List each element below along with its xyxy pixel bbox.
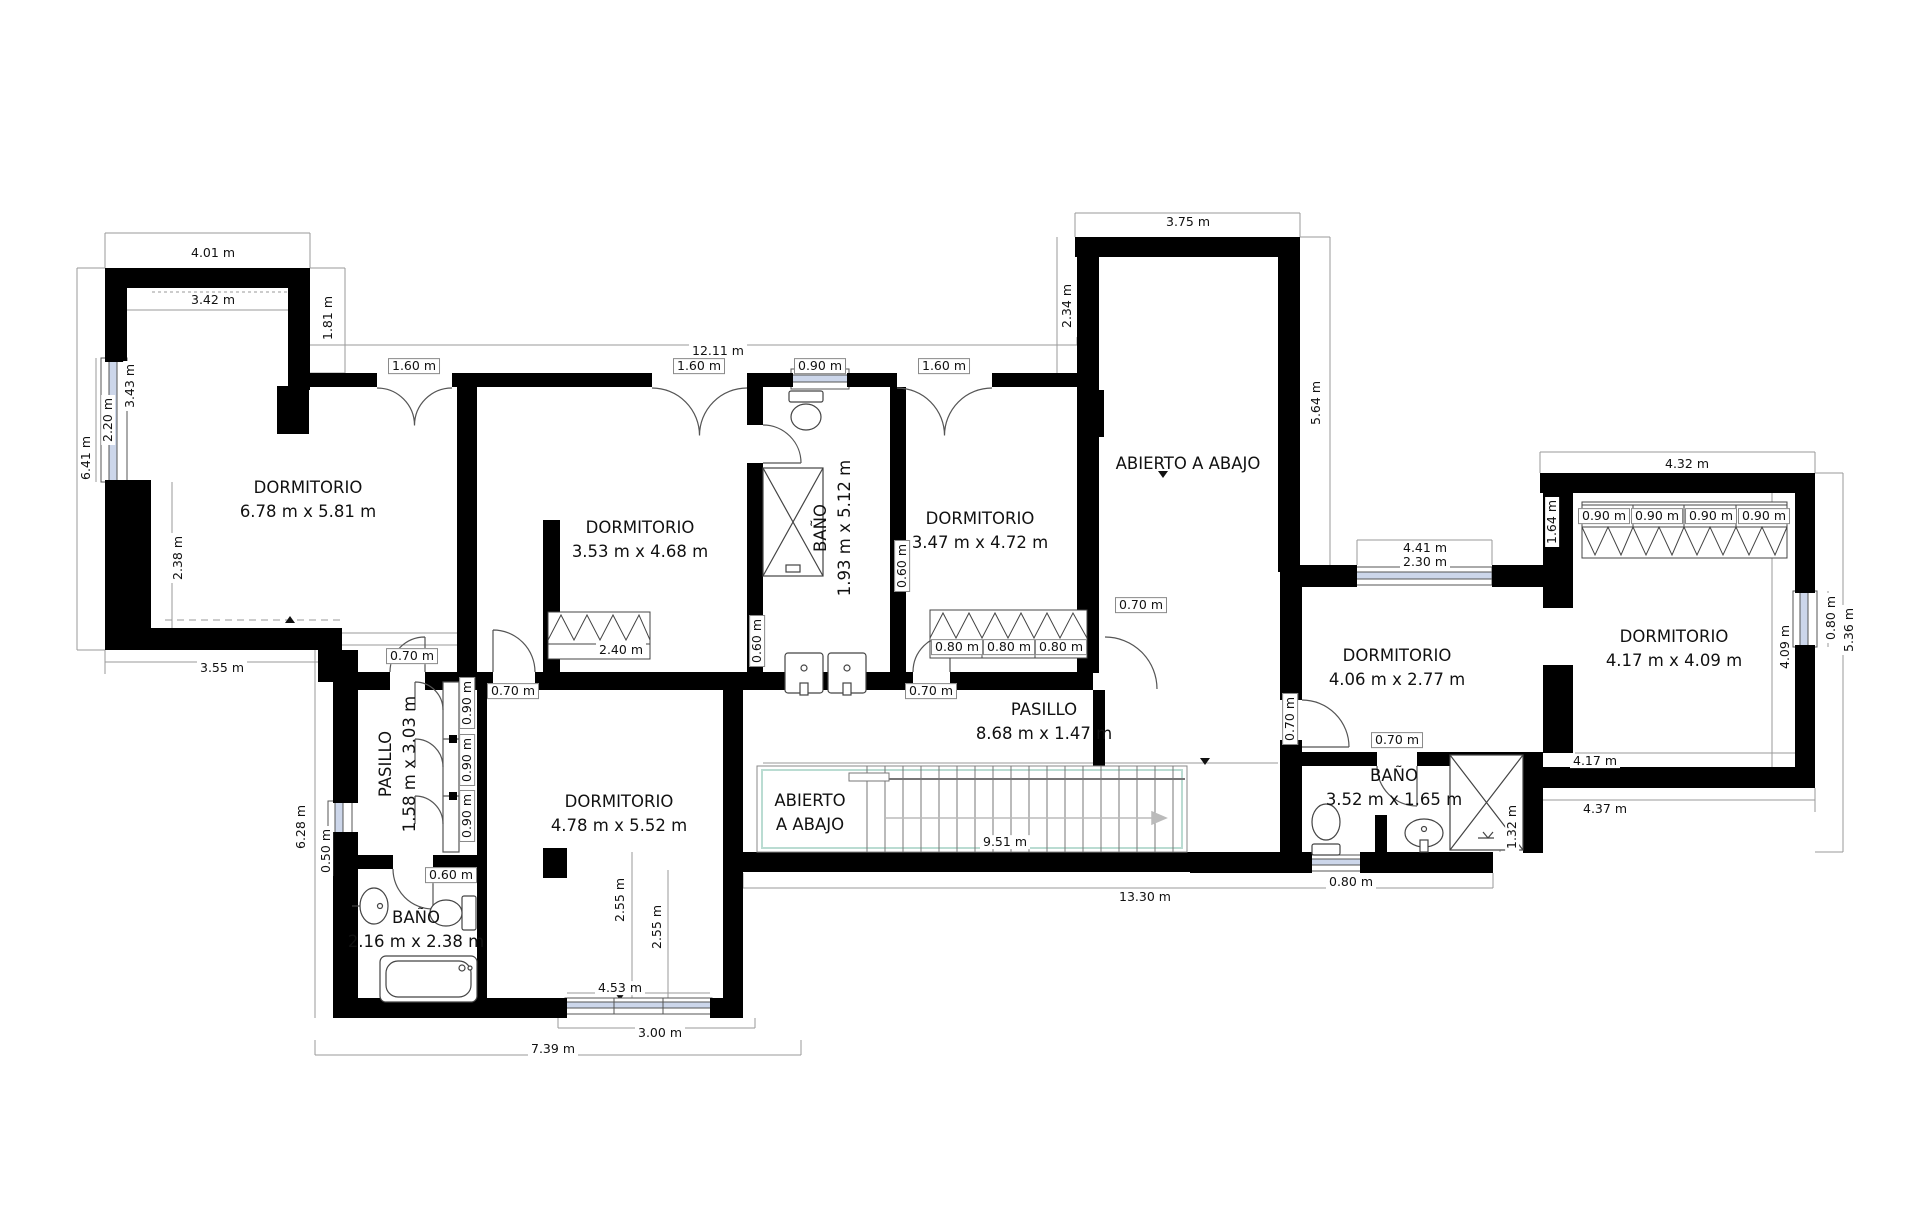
- bathtub-bano2: [380, 956, 477, 1002]
- dimension-label-21: 2.40 m: [596, 643, 646, 657]
- dimension-label-48: 0.60 m: [425, 867, 477, 883]
- room-label-pasillo-2: PASILLO 1.58 m x 3.03 m: [374, 696, 422, 832]
- room-label-dormitorio-3: DORMITORIO 3.47 m x 4.72 m: [912, 507, 1048, 555]
- dimension-label-16: 0.70 m: [386, 648, 438, 664]
- dimension-label-3: 12.11 m: [689, 344, 747, 358]
- dimension-label-27: 0.70 m: [1371, 732, 1423, 748]
- room-label-dormitorio-4: DORMITORIO 4.06 m x 2.77 m: [1329, 644, 1465, 692]
- dimension-label-10: 5.64 m: [1309, 378, 1323, 428]
- room-label-pasillo-1: PASILLO 8.68 m x 1.47 m: [976, 698, 1112, 746]
- dimension-label-13: 3.43 m: [123, 361, 137, 411]
- floor-plan-canvas: [0, 0, 1920, 1207]
- door-dormitorio4: [1302, 700, 1349, 747]
- window-dormitorio4: [1355, 567, 1492, 585]
- sink-bano1-right: [828, 653, 866, 695]
- dimension-label-15: 3.55 m: [197, 661, 247, 675]
- door-landing: [1105, 637, 1157, 689]
- dimension-label-36: 0.80 m: [1824, 593, 1838, 643]
- dimension-label-18: 0.70 m: [905, 683, 957, 699]
- dimension-label-34: 0.90 m: [1685, 508, 1737, 524]
- dimension-label-33: 0.90 m: [1631, 508, 1683, 524]
- closets: [548, 502, 1787, 659]
- dimension-label-25: 0.70 m: [1115, 597, 1167, 613]
- dimension-label-8: 3.75 m: [1163, 215, 1213, 229]
- dimension-label-50: 6.28 m: [294, 802, 308, 852]
- room-label-dormitorio-1: DORMITORIO 6.78 m x 5.81 m: [240, 476, 376, 524]
- dimension-label-4: 1.60 m: [388, 358, 440, 374]
- dimension-label-14: 2.38 m: [171, 533, 185, 583]
- sink-bano1-left: [785, 653, 823, 695]
- dimension-label-22: 0.80 m: [931, 639, 983, 655]
- door-dormitorio6: [493, 630, 535, 672]
- dimension-label-49: 0.50 m: [319, 826, 333, 876]
- dimension-label-43: 9.51 m: [980, 835, 1030, 849]
- window-south-bano3: [1310, 855, 1362, 871]
- dimension-label-29: 2.30 m: [1400, 555, 1450, 569]
- dimension-label-44: 0.80 m: [1326, 875, 1376, 889]
- dimension-label-9: 2.34 m: [1060, 281, 1074, 331]
- dimension-label-26: 0.70 m: [1282, 693, 1298, 745]
- dimension-label-53: 4.53 m: [595, 981, 645, 995]
- dimension-label-39: 4.17 m: [1570, 754, 1620, 768]
- dimension-label-17: 0.70 m: [487, 683, 539, 699]
- dimension-label-7: 1.60 m: [918, 358, 970, 374]
- dimension-label-2: 1.81 m: [321, 293, 335, 343]
- dimension-label-55: 7.39 m: [528, 1042, 578, 1056]
- room-label-abierto-a-abajo-torre: ABIERTO A ABAJO: [1116, 452, 1261, 476]
- dimension-label-37: 5.36 m: [1842, 605, 1856, 655]
- dimension-label-11: 6.41 m: [79, 433, 93, 483]
- room-label-abierto-a-abajo-escalera: ABIERTO A ABAJO: [774, 789, 845, 837]
- french-door-2: [652, 388, 747, 436]
- dimension-label-42: 13.30 m: [1116, 890, 1174, 904]
- room-label-bano-1: BAÑO 1.93 m x 5.12 m: [809, 460, 857, 596]
- dimension-label-28: 4.41 m: [1400, 541, 1450, 555]
- room-label-dormitorio-2: DORMITORIO 3.53 m x 4.68 m: [572, 516, 708, 564]
- dimension-label-0: 4.01 m: [188, 246, 238, 260]
- dimension-label-51: 2.55 m: [613, 875, 627, 925]
- door-bano1: [763, 425, 801, 463]
- dimension-label-52: 2.55 m: [650, 902, 664, 952]
- dimension-label-47: 0.90 m: [459, 790, 475, 842]
- french-door-1: [377, 388, 452, 426]
- dimension-label-30: 1.64 m: [1545, 497, 1559, 547]
- dimension-label-38: 4.09 m: [1778, 622, 1792, 672]
- room-label-dormitorio-6: DORMITORIO 4.78 m x 5.52 m: [551, 790, 687, 838]
- dimension-label-45: 0.90 m: [459, 677, 475, 729]
- sink-bano3: [1405, 819, 1443, 852]
- dimension-label-40: 4.37 m: [1580, 802, 1630, 816]
- dimension-label-20: 0.60 m: [749, 615, 765, 667]
- french-door-3: [897, 388, 992, 436]
- floor-plan: DORMITORIO 6.78 m x 5.81 mDORMITORIO 3.5…: [0, 0, 1920, 1207]
- room-label-bano-2: BAÑO 2.16 m x 2.38 m: [348, 906, 484, 954]
- dimension-label-19: 0.60 m: [894, 540, 910, 592]
- room-label-dormitorio-5: DORMITORIO 4.17 m x 4.09 m: [1606, 625, 1742, 673]
- dimension-label-23: 0.80 m: [983, 639, 1035, 655]
- dimension-label-46: 0.90 m: [459, 734, 475, 786]
- dimension-label-1: 3.42 m: [188, 293, 238, 307]
- dimension-label-32: 0.90 m: [1578, 508, 1630, 524]
- dimension-label-6: 0.90 m: [794, 358, 846, 374]
- dimension-label-31: 4.32 m: [1662, 457, 1712, 471]
- dimension-label-54: 3.00 m: [635, 1026, 685, 1040]
- dimension-label-12: 2.20 m: [101, 395, 115, 445]
- dimension-label-41: 1.32 m: [1505, 802, 1519, 852]
- dimension-label-5: 1.60 m: [673, 358, 725, 374]
- room-label-bano-3: BAÑO 3.52 m x 1.65 m: [1326, 764, 1462, 812]
- dimension-label-24: 0.80 m: [1035, 639, 1087, 655]
- dimension-label-35: 0.90 m: [1738, 508, 1790, 524]
- window-south-dormitorio6: [565, 998, 712, 1014]
- window-east-dormitorio5: [1793, 591, 1817, 647]
- toilet-bano1: [789, 391, 823, 430]
